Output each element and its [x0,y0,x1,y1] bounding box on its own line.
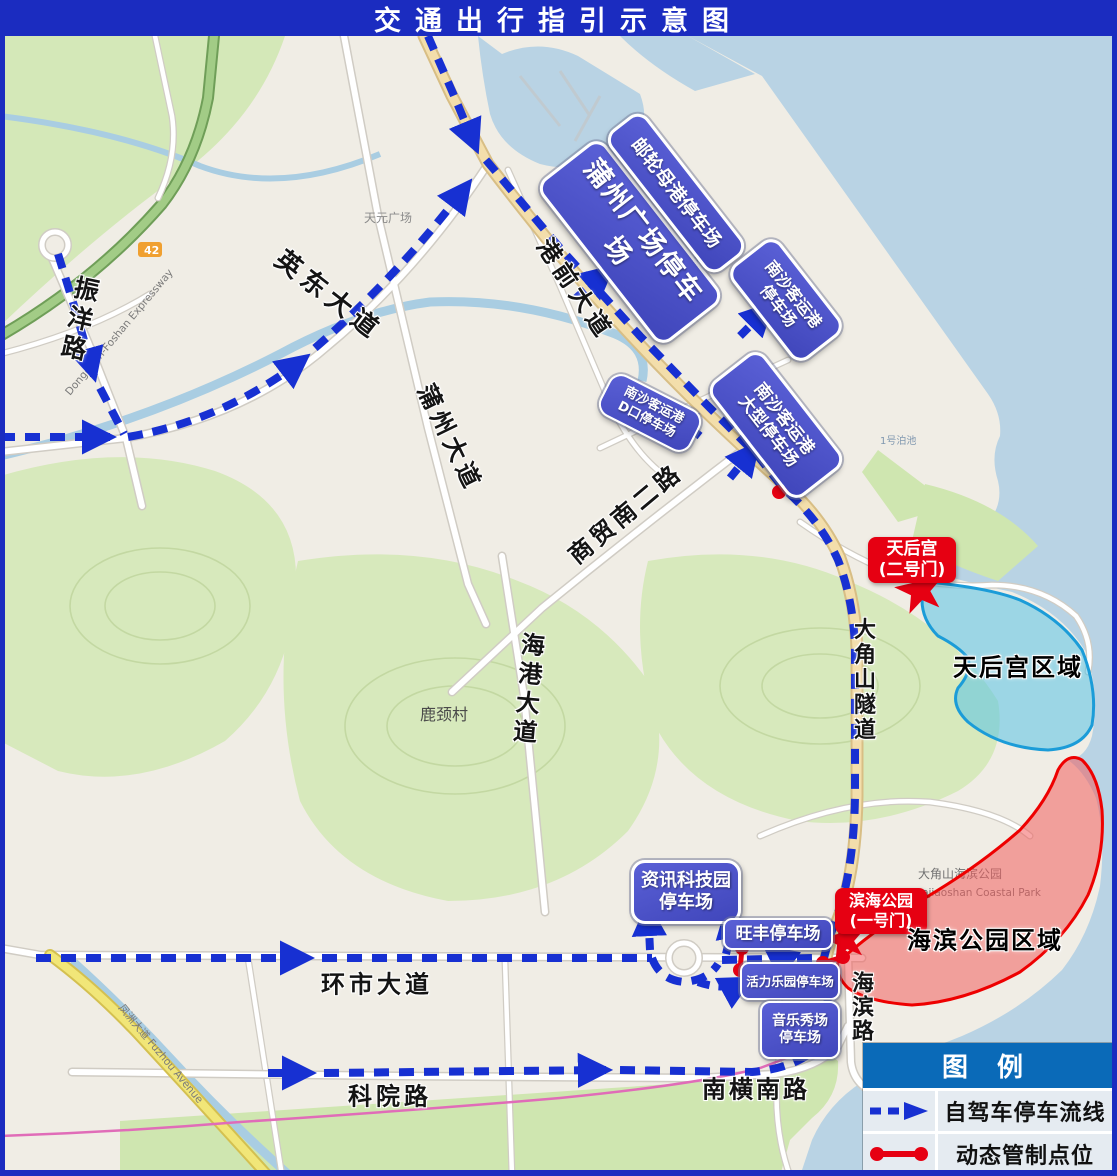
gate-label-tianhou-gate2: 天后宫 (二号门) [868,537,956,583]
road-label-keyuan: 科院路 [348,1077,432,1112]
legend-title: 图 例 [863,1043,1112,1088]
legend-row-driving-route: 自驾车停车流线 [863,1091,1112,1131]
region-label-binhai: 海滨公园区域 [907,921,1063,956]
parking-label-info-tech-park: 资讯科技园 停车场 [631,860,741,924]
legend-label-control-point: 动态管制点位 [938,1134,1112,1174]
red-control-segment-icon [863,1134,935,1174]
blue-dashed-arrow-icon [863,1091,935,1131]
road-label-nanheng: 南横南路 [702,1070,810,1105]
road-label-haibin: 海滨路 [844,971,876,1043]
legend: 图 例 自驾车停车流线 动态管制点位 [863,1043,1112,1174]
road-label-dajiaoshan-tunnel: 大角山隧道 [846,618,878,743]
road-badge-number: 42 [144,244,159,257]
parking-label-wangfeng: 旺丰停车场 [723,918,833,950]
frame-border-left [0,0,5,1176]
legend-label-driving-route: 自驾车停车流线 [938,1091,1112,1131]
region-label-tianhou: 天后宫区域 [953,648,1083,683]
map-canvas: 港湾街道 Gangwan 天元广场 鹿颈村 大角山海滨公园 Dajiaoshan… [0,36,1117,1176]
frame-border-right [1112,0,1117,1176]
parking-label-vitality-park: 活力乐园停车场 [740,962,840,1000]
page-title: 交通出行指引示意图 [0,0,1117,36]
map-text-berth: 1号泊池 [880,434,916,447]
parking-label-music-show: 音乐秀场 停车场 [760,1001,840,1059]
legend-row-control-point: 动态管制点位 [863,1134,1112,1174]
traffic-guide-sheet: 交通出行指引示意图 [0,0,1117,1176]
map-text-lujing: 鹿颈村 [420,705,468,724]
map-text-fuzhou: 凤洲大道 Fuzhou Avenue [116,1002,206,1106]
frame-border-bottom [0,1170,1117,1176]
map-text-tianyuan: 天元广场 [364,211,412,225]
road-label-huanshi: 环市大道 [321,965,433,1000]
